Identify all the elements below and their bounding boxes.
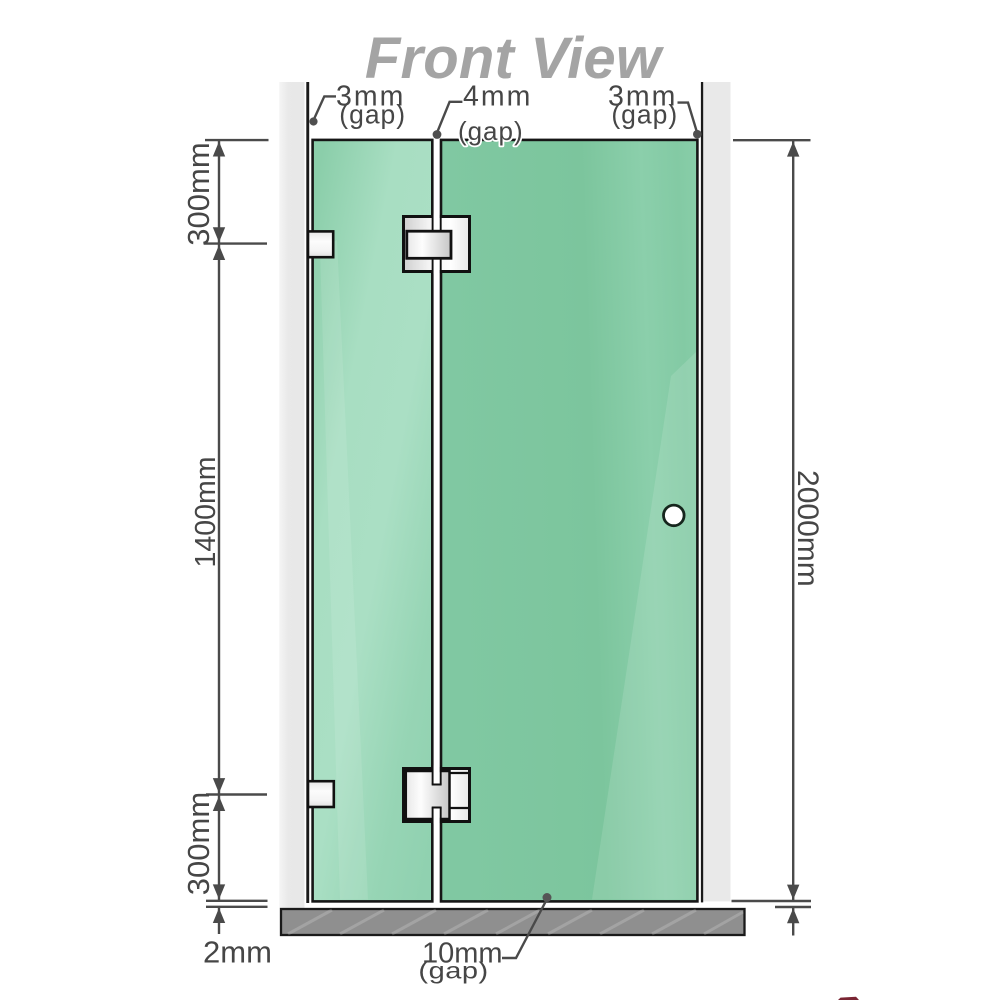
- svg-text:2mm: 2mm: [203, 935, 272, 970]
- svg-text:(gap): (gap): [458, 116, 524, 146]
- svg-text:2000mm: 2000mm: [791, 470, 824, 587]
- svg-text:4mm: 4mm: [463, 81, 532, 113]
- svg-text:(gap): (gap): [339, 100, 406, 130]
- svg-text:300mm: 300mm: [181, 142, 216, 245]
- svg-text:1400mm: 1400mm: [190, 457, 222, 568]
- svg-text:(gap): (gap): [418, 957, 488, 984]
- svg-text:300mm: 300mm: [181, 792, 216, 895]
- svg-text:(gap): (gap): [611, 100, 678, 130]
